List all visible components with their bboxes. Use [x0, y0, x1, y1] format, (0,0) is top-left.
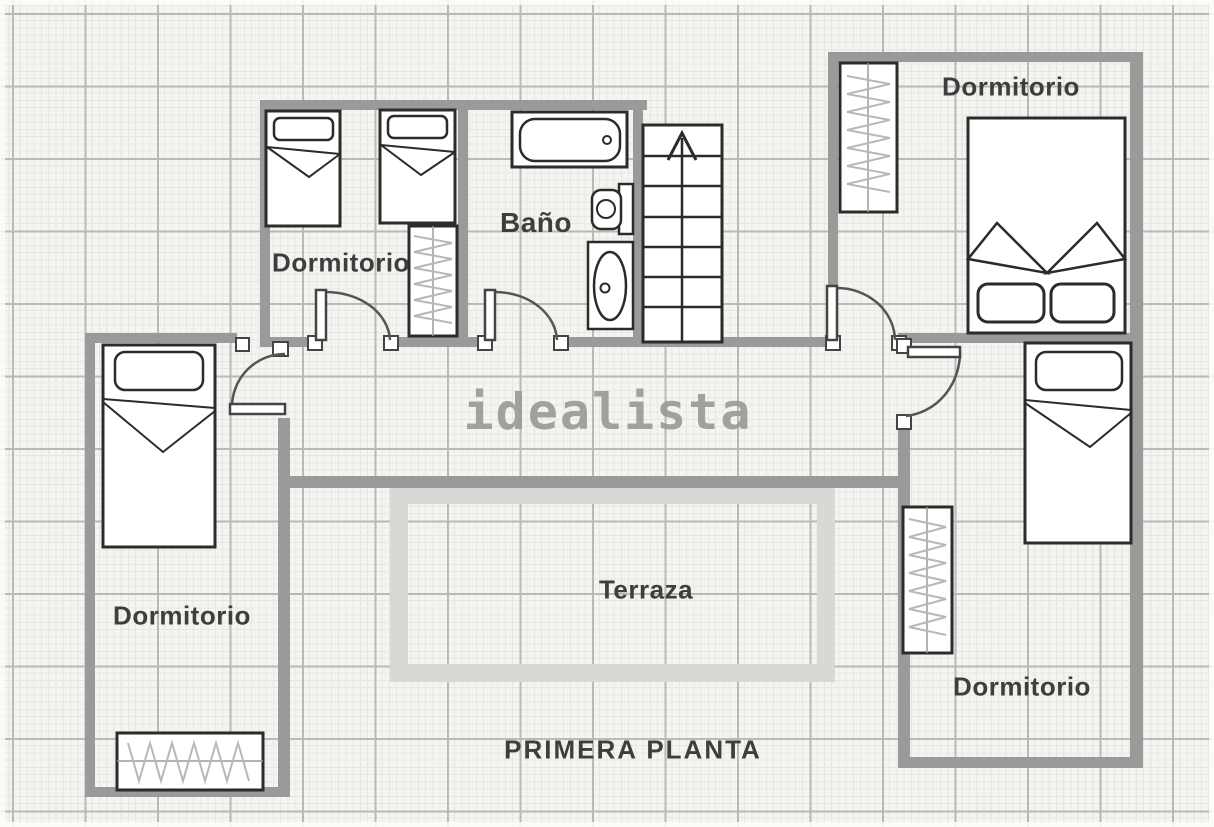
room-label-bedroom-left: Dormitorio [113, 601, 251, 632]
wall [392, 337, 486, 347]
wall [85, 333, 237, 343]
door-bedroom-left [230, 338, 288, 414]
room-label-bedroom-top-middle: Dormitorio [272, 248, 410, 279]
drain [601, 284, 610, 293]
wall [828, 52, 838, 288]
room-label-bathroom: Baño [500, 207, 572, 239]
floor-plan: idealista Dormitorio Baño Dormitorio Dor… [0, 0, 1214, 827]
door-bedroom-top-right [826, 286, 906, 350]
room-label-bedroom-top-right: Dormitorio [942, 72, 1080, 103]
toilet [592, 184, 633, 234]
room-label-bedroom-right: Dormitorio [953, 672, 1091, 703]
floor-title: PRIMERA PLANTA [504, 735, 762, 766]
single-bed [266, 111, 340, 226]
pillow [1051, 284, 1114, 322]
wall [288, 476, 908, 488]
wardrobe [840, 63, 897, 212]
wardrobe [409, 226, 457, 336]
pillow [388, 116, 447, 138]
wall [898, 757, 1143, 768]
wall [458, 110, 468, 347]
door-bedroom-top-middle [308, 290, 398, 350]
door-bathroom [478, 290, 568, 350]
wall [85, 333, 95, 797]
pillow [115, 352, 203, 390]
drain [603, 136, 611, 144]
furniture-bedroom-top-middle [266, 110, 457, 336]
pillow [274, 118, 333, 140]
wall [830, 52, 1142, 62]
wardrobe [903, 507, 952, 653]
pillow [978, 284, 1044, 322]
bathtub [512, 112, 627, 167]
wall [278, 418, 290, 797]
door-bedroom-right [897, 339, 960, 429]
wardrobe [117, 733, 263, 790]
room-label-terrace: Terraza [599, 575, 693, 606]
idealista-watermark: idealista [464, 383, 753, 441]
sink [588, 242, 633, 329]
staircase [643, 125, 722, 342]
furniture-bedroom-top-right [840, 63, 1125, 333]
double-bed [968, 118, 1125, 333]
single-bed [103, 345, 215, 547]
single-bed [1025, 343, 1131, 543]
furniture-bedroom-right [903, 343, 1131, 653]
single-bed [380, 110, 455, 223]
pillow [1036, 352, 1122, 390]
